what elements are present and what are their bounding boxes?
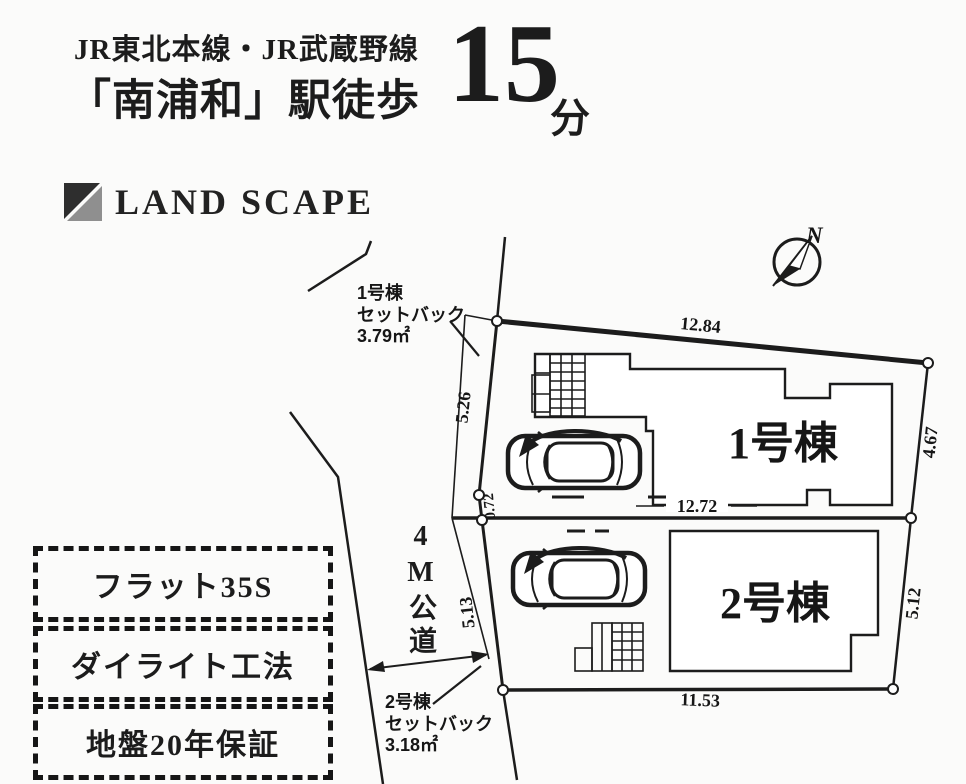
road-width-arrow [367, 651, 489, 672]
north-label: N [805, 223, 824, 248]
lot2-label: 2号棟 [720, 579, 831, 628]
dim-left-lower: 5.13 [455, 596, 478, 629]
dim-right-lower: 5.12 [901, 587, 924, 620]
dim-right-upper: 4.67 [918, 426, 941, 459]
car-lot2 [513, 548, 645, 609]
flyer-page: JR東北本線・JR武蔵野線 「南浦和」駅徒歩 15 分 LAND SCAPE フ… [0, 0, 966, 784]
setback1-line1: 1号棟 [357, 282, 404, 303]
north-arrow: N [773, 223, 824, 286]
setback1-line3: 3.79㎡ [357, 325, 410, 346]
lot1-label: 1号棟 [728, 419, 839, 468]
building-2-stairs [575, 623, 643, 671]
setback2-leader [433, 666, 481, 704]
dim-bottom: 11.53 [680, 689, 720, 710]
setback1-annotation: 1号棟 セットバック 3.79㎡ [357, 282, 465, 346]
setback2-line3: 3.18㎡ [385, 734, 438, 755]
setback2-line1: 2号棟 [385, 691, 432, 712]
dim-inner: 12.72 [677, 496, 718, 516]
site-plan-drawing: N 12.84 4.67 5.26 0.72 5.13 5.12 12.72 1… [0, 0, 966, 784]
car-lot1 [508, 431, 640, 492]
dim-left-upper: 5.26 [451, 391, 474, 424]
dim-left-mid: 0.72 [481, 493, 499, 521]
dim-top: 12.84 [679, 313, 721, 337]
setback2-line2: セットバック [385, 714, 493, 734]
setback1-line2: セットバック [357, 305, 465, 325]
